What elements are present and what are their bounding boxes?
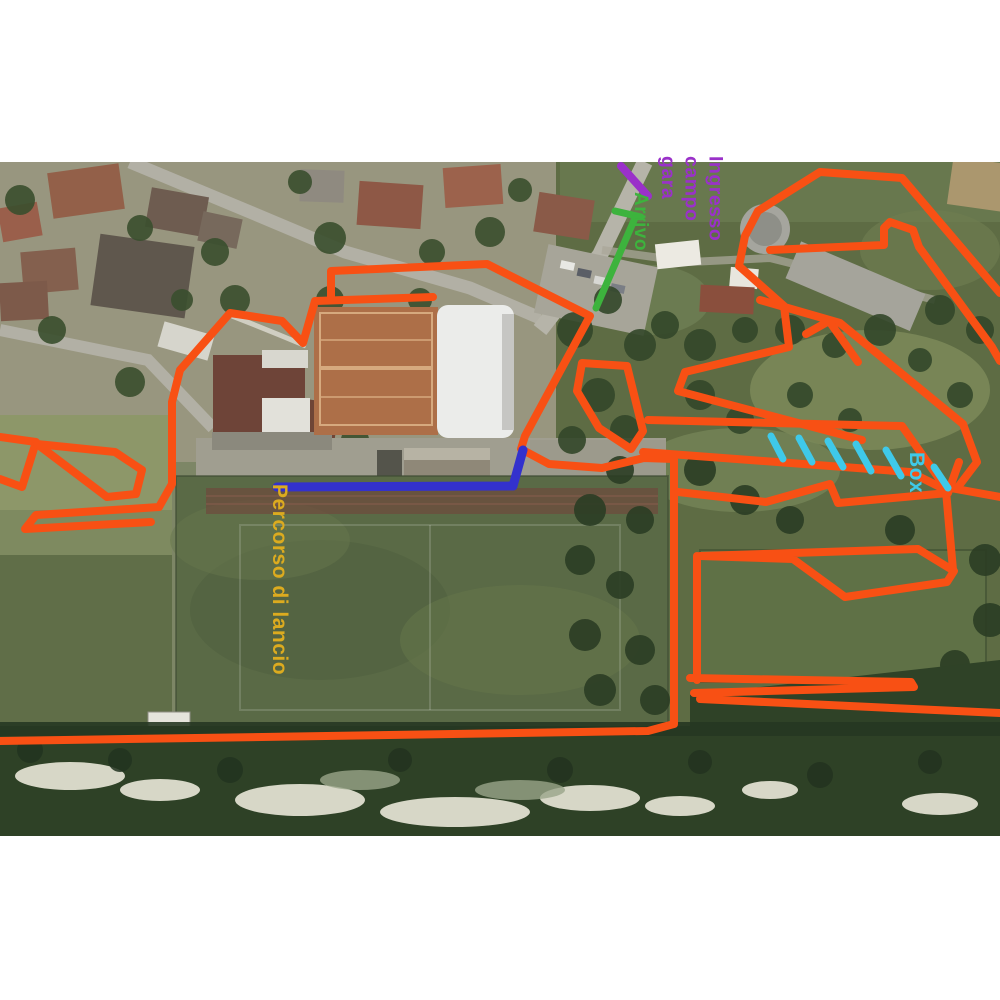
launch-path-label: Percorso di lancio	[267, 484, 291, 675]
box-label: Box	[904, 452, 928, 493]
sports-hall-roof	[437, 305, 514, 438]
entrance-label: Ingresso campo gara	[655, 156, 726, 241]
entrance-label-line3: gara	[655, 156, 679, 241]
white-tent	[655, 240, 701, 269]
satellite-map-image	[0, 0, 1000, 1000]
entrance-label-line1: Ingresso	[703, 156, 727, 241]
tennis-courts	[314, 307, 438, 435]
finish-label: Arrivo	[629, 192, 651, 251]
entrance-label-line2: campo	[679, 156, 703, 241]
course-map: Ingresso campo gara Arrivo Percorso di l…	[0, 0, 1000, 1000]
